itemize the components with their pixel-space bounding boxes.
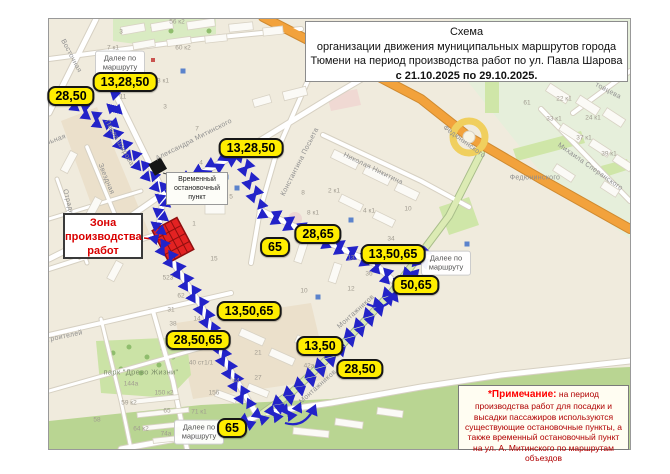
note-body: на период производства работ для посадки… [465, 389, 622, 463]
route-badge-28-65: 28,65 [294, 224, 341, 244]
note-box: *Примечание: на период производства рабо… [458, 385, 629, 450]
route-badge-13-50-65: 13,50,65 [361, 244, 426, 264]
work-zone-callout: Зона производства работ [63, 213, 143, 259]
work-zone-line1: Зона [65, 217, 141, 231]
temp-stop-label: Временный остановочный пункт [166, 172, 228, 205]
route-badge-28-50: 28,50 [336, 359, 383, 379]
work-zone-marker [144, 218, 194, 263]
work-zone-line3: работ [65, 245, 141, 259]
title-line1: Схема [306, 25, 627, 40]
route-badge-13-50-65: 13,50,65 [217, 301, 282, 321]
title-line3: Тюмени на период производства работ по у… [306, 54, 627, 69]
route-badge-13-28-50: 13,28,50 [93, 72, 158, 92]
title-line4: с 21.10.2025 по 29.10.2025. [306, 69, 627, 84]
route-scheme-page: ВосточнаяПавла ШароваАлександра Митинско… [0, 0, 670, 474]
route-badge-28-50: 28,50 [47, 86, 94, 106]
note-heading: *Примечание: [488, 389, 557, 400]
route-badge-50-65: 50,65 [392, 275, 439, 295]
route-continue-label: Далее по маршруту [421, 251, 471, 276]
route-badge-65: 65 [217, 418, 247, 438]
work-zone-line2: производства [65, 231, 141, 245]
route-badge-13-28-50: 13,28,50 [219, 138, 284, 158]
title-line2: организации движения муниципальных маршр… [306, 40, 627, 55]
route-badge-13-50: 13,50 [296, 336, 343, 356]
route-badge-28-50-65: 28,50,65 [166, 330, 231, 350]
route-badge-65: 65 [260, 237, 290, 257]
title-box: Схема организации движения муниципальных… [305, 21, 628, 82]
